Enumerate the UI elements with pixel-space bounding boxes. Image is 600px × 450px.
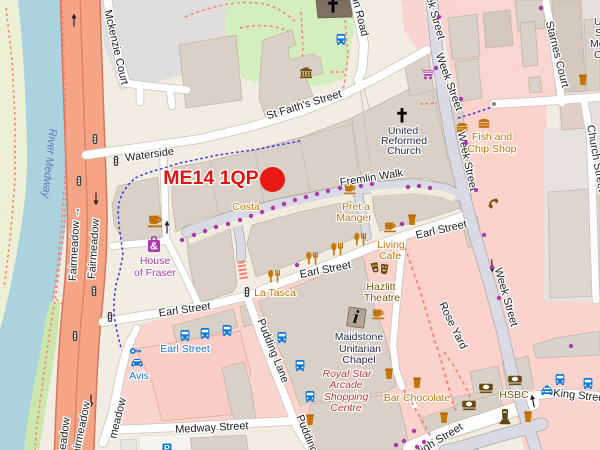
svg-text:Costa: Costa xyxy=(232,201,260,213)
svg-text:Cafe: Cafe xyxy=(379,250,401,262)
svg-text:Avis: Avis xyxy=(129,370,149,382)
svg-text:Chip Shop: Chip Shop xyxy=(467,143,516,155)
svg-text:La Tasca: La Tasca xyxy=(254,287,296,299)
svg-text:Chapel: Chapel xyxy=(342,354,375,366)
svg-text:House: House xyxy=(140,255,171,267)
svg-text:Manger: Manger xyxy=(336,212,372,224)
svg-text:Maidstone: Maidstone xyxy=(335,331,384,343)
svg-text:HSBC: HSBC xyxy=(499,389,529,401)
svg-text:Centre: Centre xyxy=(330,402,362,414)
svg-text:Church: Church xyxy=(387,145,421,157)
svg-text:of Fraser: of Fraser xyxy=(134,267,177,279)
svg-text:Earl Street: Earl Street xyxy=(160,343,210,355)
svg-text:Bar Chocolate: Bar Chocolate xyxy=(384,392,451,404)
svg-text:Arcade: Arcade xyxy=(328,379,362,391)
svg-text:ME14 1QP: ME14 1QP xyxy=(163,167,258,189)
svg-text:Ch: Ch xyxy=(594,49,600,61)
svg-text:P: P xyxy=(164,444,170,450)
svg-text:Theatre: Theatre xyxy=(364,292,400,304)
svg-text:Fish and: Fish and xyxy=(472,131,512,143)
